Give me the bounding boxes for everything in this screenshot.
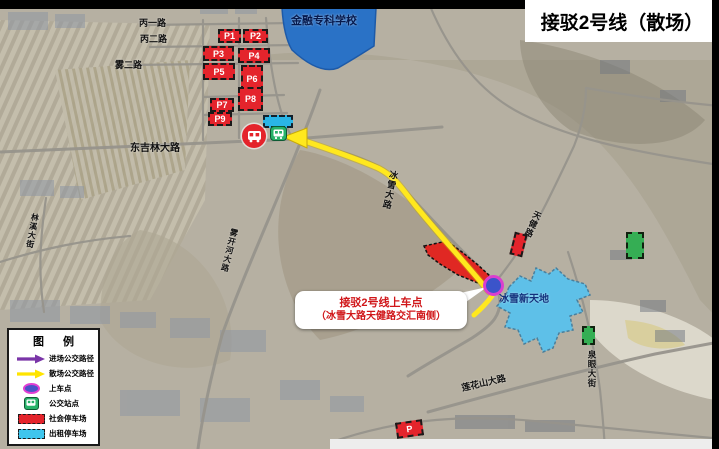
parking-lot-p9[interactable]: P9 bbox=[208, 112, 232, 126]
legend-item-exit-route: 散场公交路径 bbox=[13, 366, 94, 381]
legend-title: 图 例 bbox=[13, 333, 94, 349]
parking-lot-p2[interactable]: P2 bbox=[243, 29, 268, 43]
taxi-parking-icon bbox=[13, 429, 49, 439]
exit-route-arrow-icon bbox=[13, 369, 49, 379]
road-label-dongjilin: 东吉林大路 bbox=[130, 139, 180, 154]
entry-route-arrow-icon bbox=[13, 354, 49, 364]
boarding-point-icon bbox=[13, 383, 49, 394]
road-label-wu2: 雾二路 bbox=[115, 58, 142, 71]
parking-lot-p1[interactable]: P1 bbox=[218, 29, 241, 43]
callout-line1: 接驳2号线上车点 bbox=[339, 297, 422, 311]
satellite-map-canvas[interactable] bbox=[0, 0, 719, 449]
legend-label: 出租停车场 bbox=[49, 428, 87, 439]
bottom-white-strip bbox=[330, 439, 712, 449]
legend-panel: 图 例 进场公交路径 散场公交路径 上车点 bbox=[7, 328, 100, 446]
legend-item-public-parking: 社会停车场 bbox=[13, 411, 94, 426]
callout-line2: （冰雪大路天健路交汇南侧） bbox=[316, 311, 446, 324]
school-label: 金融专科学校 bbox=[291, 12, 357, 28]
legend-label: 进场公交路径 bbox=[49, 353, 94, 364]
boarding-point-marker[interactable] bbox=[483, 275, 504, 296]
legend-item-taxi-parking: 出租停车场 bbox=[13, 426, 94, 441]
legend-item-boarding-point: 上车点 bbox=[13, 381, 94, 396]
road-label-quanyan: 泉眼大街 bbox=[586, 350, 598, 388]
legend-label: 散场公交路径 bbox=[49, 368, 94, 379]
right-black-bar bbox=[712, 0, 719, 449]
venue-label: 冰雪新天地 bbox=[499, 290, 549, 305]
bus-terminal-icon[interactable] bbox=[242, 124, 266, 148]
parking-lot-p8[interactable]: P8 bbox=[238, 87, 263, 111]
bus-glyph bbox=[247, 130, 262, 143]
map-title: 接驳2号线（散场） bbox=[525, 0, 719, 42]
road-label-bing1: 丙一路 bbox=[139, 16, 166, 29]
parking-lot-p4[interactable]: P4 bbox=[238, 48, 270, 63]
parking-lot-p5[interactable]: P5 bbox=[203, 63, 235, 80]
legend-item-bus-stop: 公交站点 bbox=[13, 396, 94, 411]
legend-item-entry-route: 进场公交路径 bbox=[13, 351, 94, 366]
map-title-text: 接驳2号线（散场） bbox=[541, 8, 704, 35]
road-label-bing2: 丙二路 bbox=[140, 32, 167, 45]
boarding-point-callout: 接驳2号线上车点 （冰雪大路天健路交汇南侧） bbox=[295, 291, 467, 329]
bus-glyph-small bbox=[273, 129, 284, 139]
bus-stop-icon[interactable] bbox=[270, 126, 287, 141]
green-parking-marker-2[interactable] bbox=[582, 326, 595, 345]
green-parking-marker-1[interactable] bbox=[626, 232, 644, 259]
parking-lot-p3[interactable]: P3 bbox=[203, 46, 234, 61]
public-parking-icon bbox=[13, 414, 49, 424]
shuttle-map-page: 接驳2号线（散场） 丙一路 丙二路 雾二路 东吉林大路 雾开河大路 林溪大街 冰… bbox=[0, 0, 719, 449]
legend-label: 社会停车场 bbox=[49, 413, 87, 424]
legend-label: 公交站点 bbox=[49, 398, 79, 409]
legend-label: 上车点 bbox=[49, 383, 72, 394]
bus-stop-legend-icon bbox=[13, 397, 49, 410]
parking-lot-p7[interactable]: P7 bbox=[210, 98, 234, 112]
